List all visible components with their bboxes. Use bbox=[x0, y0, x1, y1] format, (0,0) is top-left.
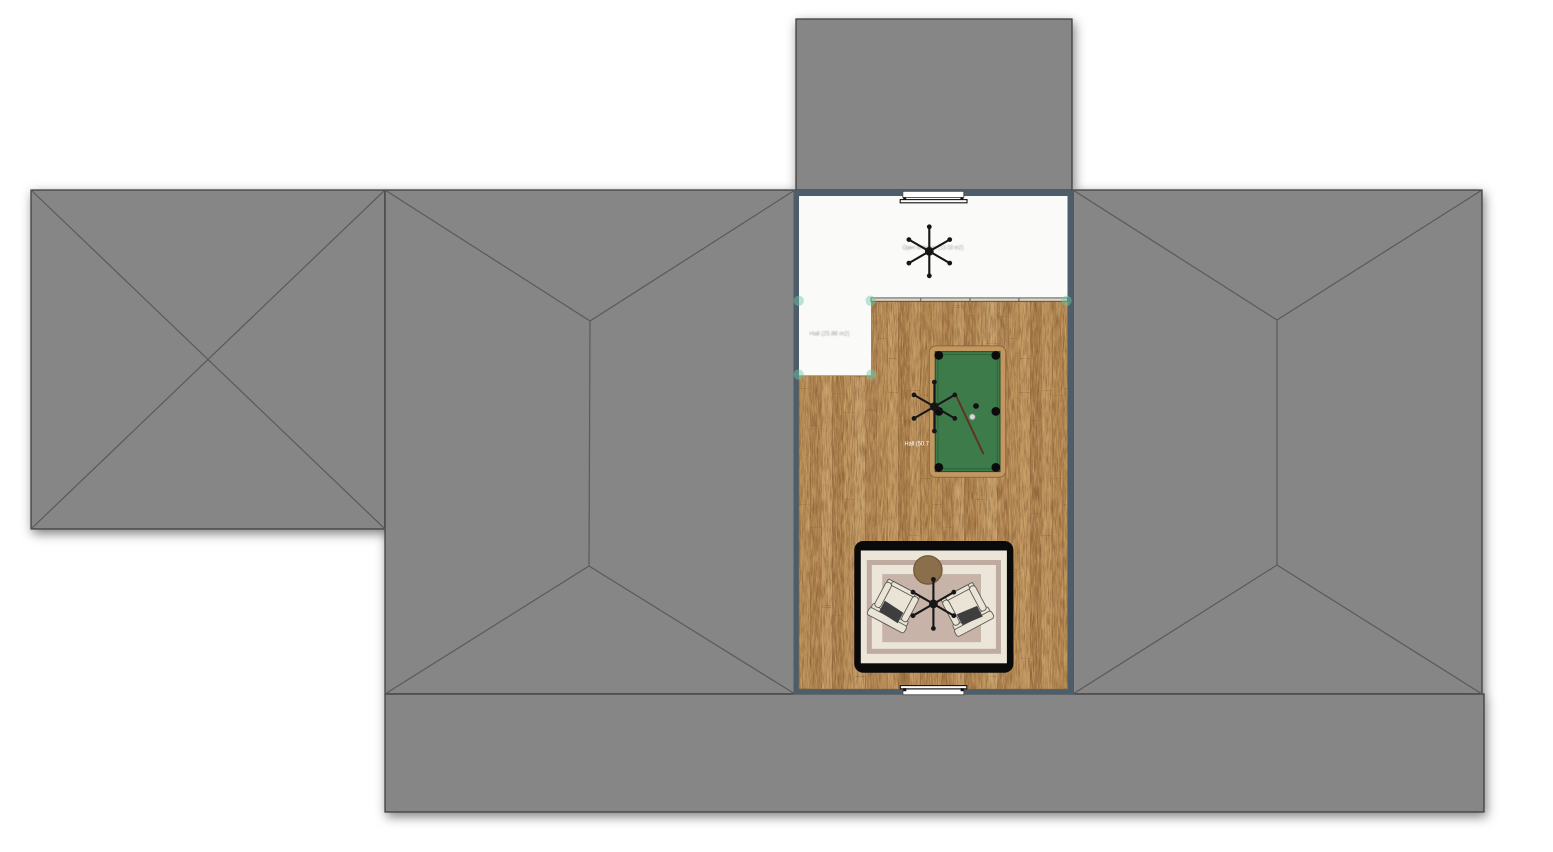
svg-text:Hall (25.86 m2): Hall (25.86 m2) bbox=[810, 331, 850, 338]
